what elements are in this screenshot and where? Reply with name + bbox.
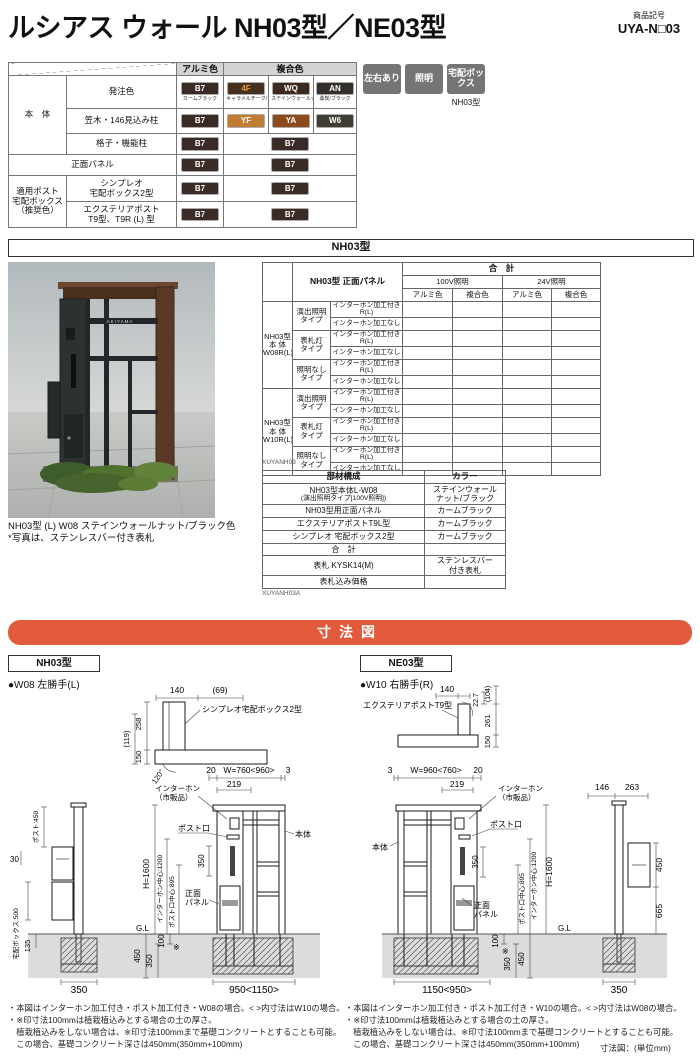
label-body: 本体: [295, 829, 311, 839]
product-code-label: 商品記号: [604, 10, 694, 21]
badge-left-right: 左右あり: [363, 64, 401, 94]
color-chip: WQ: [272, 82, 310, 96]
label-front-panel: 正面: [474, 901, 490, 910]
label-gl: G.L: [136, 924, 149, 933]
dim: H=1600: [544, 857, 554, 887]
photo-caption: NH03型 (L) W08 ステインウォールナット/ブラック色 *写真は、ステン…: [8, 521, 258, 546]
dim-note: ※: [502, 947, 509, 956]
part-name: エクステリアポストT9L型: [263, 518, 425, 531]
part-name: シンプレオ 宅配ボックス2型: [263, 531, 425, 544]
dim: 30: [10, 855, 19, 864]
option-label: インターホン加工付きR(L): [331, 417, 403, 433]
dim: ポスト口中心:895: [517, 873, 526, 925]
dim: 146: [595, 782, 609, 792]
col-head-alumi: アルミ色: [177, 63, 224, 76]
dim: 140: [440, 684, 454, 694]
head-color: カラー: [425, 471, 506, 484]
dim: 150: [134, 751, 143, 764]
price-cell: [453, 302, 503, 318]
dim: ポスト:450: [32, 811, 40, 844]
catalog-page: ルシアス ウォール NH03型／NE03型 商品記号 UYA-N□03 アルミ色…: [0, 0, 700, 1061]
photo-nameplate-text: AKIYAMA: [107, 319, 134, 324]
dim: 100: [157, 934, 166, 948]
part-name: 表札 KYSK14(M): [263, 556, 425, 576]
part-color: ステンレスバー付き表札: [425, 556, 506, 576]
dim: 258: [134, 718, 143, 731]
color-chip: B7: [181, 137, 219, 151]
dim: 350: [471, 855, 480, 869]
color-chip: 4F: [227, 82, 265, 96]
price-table: NH03型 正面パネル 合 計 100V照明 24V照明 アルミ色 複合色 アル…: [262, 262, 601, 476]
dim: 350: [611, 985, 628, 996]
label-interphone: インターホン: [155, 784, 200, 793]
dim: インターホン中心:1200: [155, 854, 164, 923]
dim: 20: [206, 765, 216, 775]
part-name: NH03型本体L-W08(演出照明タイプ[100V照明]): [263, 484, 425, 505]
color-spec-table: アルミ色 複合色 本 体 発注色 B7カームブラック 4Fキャラメルチーク/ブラ…: [8, 62, 357, 228]
row-head-exterior: エクステリアポスト T9型、T9R (L) 型: [67, 202, 177, 228]
badge-delivery-box: 宅配ボックス: [447, 64, 485, 94]
nameplate-bar: [230, 846, 235, 876]
plan-label-delivery-box: シンプレオ宅配ボックス2型: [202, 704, 302, 714]
footnotes-left: ・本図はインターホン加工付き・ポスト加工付き・W08の場合。< >内寸法はW10…: [8, 1002, 345, 1050]
label-interphone: （市販品）: [155, 792, 193, 802]
dim: 120°: [150, 768, 166, 786]
dim: W=960<760>: [410, 765, 461, 775]
color-chip: W6: [316, 114, 354, 128]
option-label: インターホン加工なし: [331, 346, 403, 359]
panel-detail: [222, 900, 238, 906]
row-head-hontai: 本 体: [9, 76, 67, 155]
color-chip-name: キャラメルチーク/ブラック: [226, 96, 266, 102]
dim: 宅配ボックス:500: [11, 908, 20, 960]
color-chip-name: ステインウォールナット/ブラック: [271, 96, 311, 102]
part-name: 表札込み価格: [263, 576, 425, 589]
parts-table: 部材構成 カラー NH03型本体L-W08(演出照明タイプ[100V照明]) ス…: [262, 470, 506, 589]
part-color: [425, 576, 506, 589]
dim-note: ※: [173, 943, 180, 952]
option-label: インターホン加工なし: [331, 317, 403, 330]
label-post-slot: ポスト口: [178, 824, 210, 833]
tag-ne03: NE03型: [360, 655, 452, 672]
part-name: NH03型用正面パネル: [263, 505, 425, 518]
product-code-box: 商品記号 UYA-N□03: [604, 10, 694, 36]
photo-lattice-post: [104, 299, 109, 474]
diagonal-cell: [9, 63, 177, 76]
option-label: インターホン加工付きR(L): [331, 330, 403, 346]
plan-label-exterior-post: エクステリアポストT9型: [363, 701, 452, 710]
foundation: [394, 966, 478, 974]
label-interphone: （市販品）: [498, 792, 536, 802]
label-front-panel: パネル: [185, 898, 209, 907]
head-fukugo: 複合色: [453, 289, 503, 302]
dim: (104): [485, 686, 492, 702]
price-cell: [403, 302, 453, 318]
photo-lattice-post: [128, 360, 132, 474]
dim: インターホン中心:1200: [529, 851, 538, 920]
head-parts: 部材構成: [263, 471, 425, 484]
color-chip: B7: [181, 158, 219, 172]
foundation: [603, 964, 635, 972]
photo-delivery-box: [48, 382, 60, 438]
color-chip-name: 桑炭/ブラック: [316, 96, 354, 102]
color-chip-name: カームブラック: [179, 96, 220, 102]
dim: 3: [286, 765, 291, 775]
price-cell: [552, 302, 601, 318]
label-front-panel: パネル: [474, 910, 498, 919]
part-name: 合 計: [263, 544, 425, 556]
unit-note: 寸法図：(単位mm): [600, 1042, 671, 1054]
dim: 135: [23, 940, 32, 953]
dim: 150: [483, 736, 492, 749]
chip-cell: AN桑炭/ブラック: [314, 76, 357, 109]
color-chip: B7: [271, 208, 309, 222]
row-head-panel: 正面パネル: [9, 155, 177, 176]
dim: 450: [133, 949, 142, 963]
dim: 350: [145, 954, 154, 968]
dim: (69): [212, 685, 227, 695]
foundation: [603, 938, 635, 964]
head-alumi: アルミ色: [503, 289, 552, 302]
foundation: [61, 964, 97, 972]
color-chip: B7: [271, 158, 309, 172]
foundation: [61, 938, 97, 964]
dim: 219: [227, 779, 241, 789]
option-label: インターホン加工なし: [331, 375, 403, 388]
dim: 20: [473, 765, 483, 775]
section-bar-nh03: NH03型: [8, 239, 694, 257]
option-label: インターホン加工なし: [331, 433, 403, 446]
row-head-koushi: 格子・機能柱: [67, 134, 177, 155]
row-head-post-group: 適用ポスト 宅配ボックス （推奨色）: [9, 176, 67, 228]
part-color: [425, 544, 506, 556]
type-label: 照明なしタイプ: [293, 359, 331, 388]
badge-lighting: 照明: [405, 64, 443, 94]
dim: 3: [388, 765, 393, 775]
part-color: カームブラック: [425, 518, 506, 531]
photo-mail-slot: [71, 354, 76, 388]
table-code: XUYANH03: [262, 459, 296, 466]
chip-cell: B7カームブラック: [177, 76, 224, 109]
photo-rail: [128, 410, 158, 414]
photo-intercom: [66, 328, 75, 340]
label-front-panel: 正面: [185, 889, 201, 898]
product-photo: AKIYAMA: [8, 262, 215, 518]
chip-cell: 4Fキャラメルチーク/ブラック: [224, 76, 269, 109]
product-code: UYA-N□03: [604, 21, 694, 36]
option-label: インターホン加工なし: [331, 404, 403, 417]
color-chip: YA: [272, 114, 310, 128]
photo-rail: [86, 356, 158, 361]
type-label: 表札灯タイプ: [293, 330, 331, 359]
head-alumi: アルミ色: [403, 289, 453, 302]
option-label: インターホン加工付きR(L): [331, 302, 403, 318]
head-front-panel: NH03型 正面パネル: [293, 263, 403, 302]
dim: 140: [170, 685, 184, 695]
type-label: 演出照明タイプ: [293, 302, 331, 331]
dim: 22.7: [473, 693, 480, 707]
color-chip: B7: [271, 182, 309, 196]
row-head-simpleo: シンプレオ 宅配ボックス2型: [67, 176, 177, 202]
part-color: カームブラック: [425, 531, 506, 544]
dim: 263: [625, 782, 639, 792]
color-chip: B7: [181, 82, 219, 96]
dimension-drawing-nh03: 140 (69) 258 150 (119) 120° シンプレオ宅配ボックス2…: [8, 684, 353, 998]
head-24v: 24V照明: [503, 276, 601, 289]
type-label: 演出照明タイプ: [293, 388, 331, 417]
dim: 261: [483, 715, 492, 728]
badge-caption: NH03型: [441, 97, 491, 108]
panel-detail: [456, 900, 472, 906]
tag-nh03: NH03型: [8, 655, 100, 672]
dim: 450: [517, 952, 526, 966]
row-head-order-color: 発注色: [67, 76, 177, 109]
dim: 219: [450, 779, 464, 789]
label-gl: G.L: [558, 924, 571, 933]
head-total: 合 計: [403, 263, 601, 276]
foundation: [394, 938, 478, 966]
row-head-kasagi: 笠木・146見込み柱: [67, 109, 177, 134]
nameplate-bar: [460, 847, 465, 875]
type-label: 表札灯タイプ: [293, 417, 331, 446]
table-code: XUYANH03A: [262, 590, 300, 597]
color-chip: B7: [181, 182, 219, 196]
part-color: カームブラック: [425, 505, 506, 518]
dim: (119): [122, 730, 131, 747]
option-label: インターホン加工付きR(L): [331, 388, 403, 404]
photo-floor: [8, 412, 215, 518]
price-cell: [503, 302, 552, 318]
dim: 100: [491, 934, 500, 948]
photo-wood-post: [156, 287, 174, 479]
option-label: インターホン加工付きR(L): [331, 446, 403, 462]
photo-door: [64, 414, 83, 458]
chip-cell: WQステインウォールナット/ブラック: [269, 76, 314, 109]
dim: 950<1150>: [229, 985, 279, 996]
label-post-slot: ポスト口: [490, 820, 522, 829]
dim: 450: [654, 858, 664, 872]
head-100v: 100V照明: [403, 276, 503, 289]
foundation: [213, 938, 293, 966]
dimension-section-bar: 寸法図: [8, 620, 692, 645]
color-chip: B7: [271, 137, 309, 151]
dim: ポスト口中心:895: [167, 876, 176, 928]
group-w08: NH03型 本 体 W08R(L): [263, 302, 293, 389]
label-interphone: インターホン: [498, 784, 543, 793]
dimension-drawing-ne03: 140 22.7 (104) 261 150 エクステリアポストT9型 3 W=…: [352, 684, 700, 998]
part-color: ステインウォールナット/ブラック: [425, 484, 506, 505]
foundation: [213, 966, 293, 974]
color-chip: B7: [181, 208, 219, 222]
dim: 350: [197, 854, 206, 868]
color-chip: AN: [316, 82, 354, 96]
dim: H=1600: [141, 859, 151, 889]
photo-plants: [118, 477, 158, 491]
col-head-fukugo: 複合色: [224, 63, 357, 76]
page-title: ルシアス ウォール NH03型／NE03型: [8, 6, 446, 45]
dim: 350: [71, 985, 88, 996]
color-chip: YF: [227, 114, 265, 128]
dim: 350: [503, 957, 512, 971]
option-label: インターホン加工付きR(L): [331, 359, 403, 375]
dim: 665: [654, 904, 664, 918]
dim: W=760<960>: [223, 765, 274, 775]
head-fukugo: 複合色: [552, 289, 601, 302]
dim: 1150<950>: [422, 985, 472, 996]
label-body: 本体: [372, 842, 388, 852]
color-chip: B7: [181, 114, 219, 128]
